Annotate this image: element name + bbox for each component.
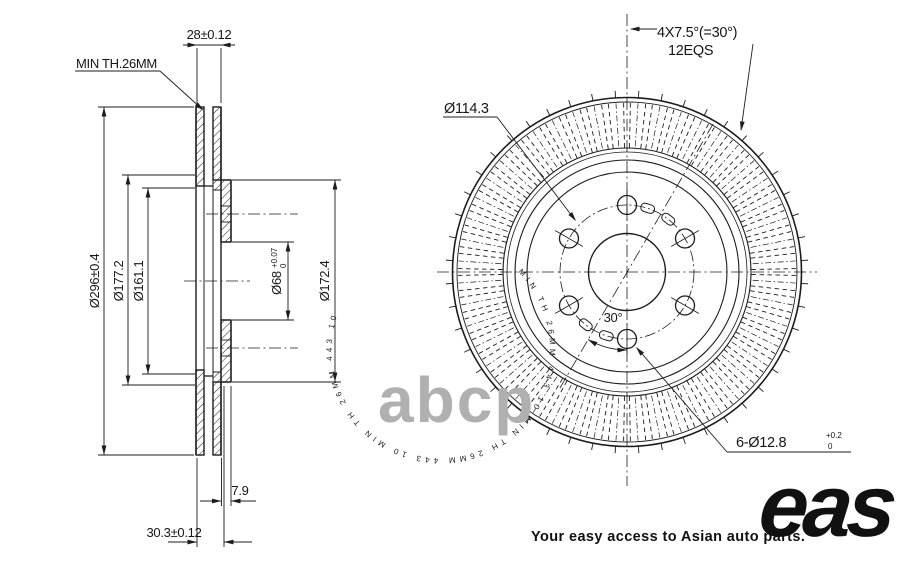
dim-outer-diameter: Ø296±0.4 [87, 254, 102, 309]
eas-logo: eas [757, 474, 895, 537]
bolt-holes-note: 6-Ø12.8 [736, 435, 787, 451]
dim-hub-offset: 7.9 [231, 483, 248, 498]
abcp-watermark: abcp [378, 368, 535, 432]
dim-177-diameter: Ø177.2 [111, 261, 126, 302]
dim-pcd-diameter: Ø114.3 [444, 101, 489, 117]
drawing-sheet: MIN TH 26MM 443 10 MIN TH 26MM 443 10 MI… [0, 0, 900, 566]
dim-plate-pair-width: 28±0.12 [187, 27, 232, 42]
dim-bore-tol-dn: 0 [279, 263, 288, 268]
dim-161-diameter: Ø161.1 [131, 261, 146, 302]
dim-hub-diameter: Ø172.4 [317, 261, 332, 302]
min-thickness-note: MIN TH.26MM [76, 56, 157, 71]
angle-30-note: 30° [604, 310, 623, 325]
brand-tagline: Your easy access to Asian auto parts. [531, 529, 805, 545]
dimension-arrows [102, 27, 745, 545]
dim-bore-tol-up: +0.07 [270, 247, 279, 268]
dim-bore-diameter: Ø68 [269, 271, 284, 295]
vane-spacing-note: 4X7.5°(=30°) [657, 25, 737, 41]
dim-total-width: 30.3±0.12 [146, 525, 201, 540]
vane-count-note: 12EQS [668, 43, 713, 59]
bolt-holes-tol-dn: 0 [828, 442, 833, 451]
bolt-holes-tol-up: +0.2 [826, 431, 842, 440]
